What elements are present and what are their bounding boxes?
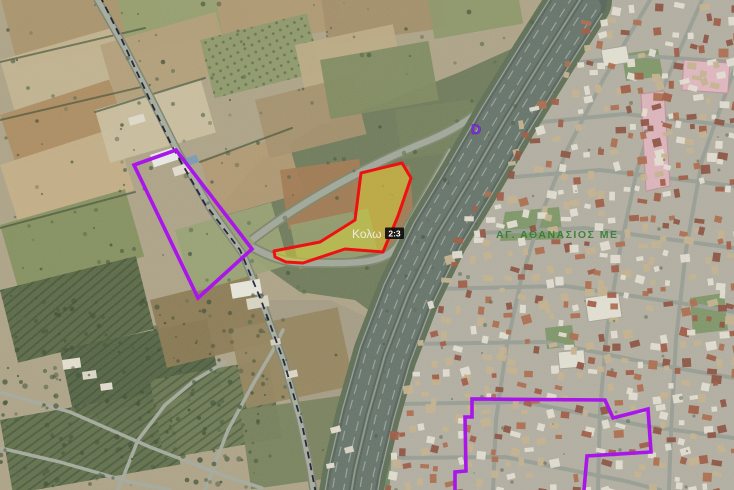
satellite-map[interactable]: D ΑΓ. ΑΘΑΝΑΣΙΟΣ ΜΕ Κολω 2:3 bbox=[0, 0, 734, 490]
map-viewport[interactable]: D ΑΓ. ΑΘΑΝΑΣΙΟΣ ΜΕ Κολω 2:3 bbox=[0, 0, 734, 490]
parcel-label: Κολω bbox=[352, 227, 382, 241]
district-label: ΑΓ. ΑΘΑΝΑΣΙΟΣ ΜΕ bbox=[496, 229, 618, 241]
parcel-badge: 2:3 bbox=[388, 229, 401, 239]
location-marker-d[interactable]: D bbox=[471, 121, 481, 137]
